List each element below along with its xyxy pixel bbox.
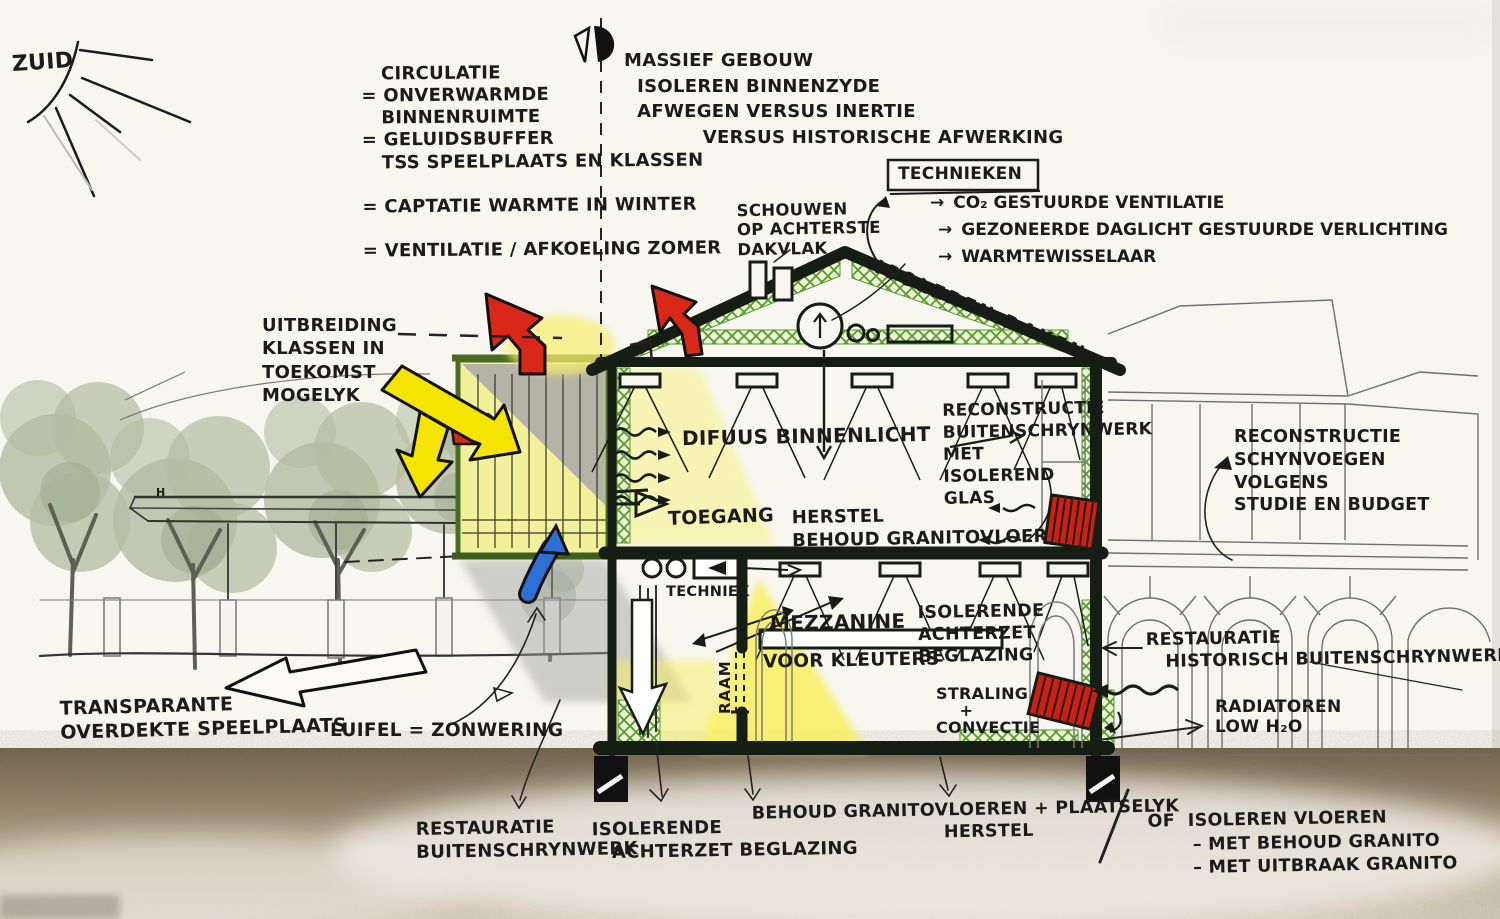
label-luifel-zonwering: LUIFEL = ZONWERING <box>330 720 563 743</box>
label-behoud-granitovloeren: BEHOUD GRANITOVLOEREN + PLAATSELYK HERST… <box>752 796 1180 847</box>
sketch-canvas: ZUID CIRCULATIE = ONVERWARMDE BINNENRUIM… <box>0 0 1500 919</box>
label-mezzanine: MEZZANINE <box>770 609 906 636</box>
label-reconstructie-buitenschrijnwerk: RECONSTRUCTIE BUITENSCHRYNWERK MET ISOLE… <box>942 396 1154 510</box>
label-radiatoren-low-h2o: RADIATOREN LOW H₂O <box>1215 697 1342 738</box>
label-toegang: TOEGANG <box>668 504 775 531</box>
label-techniek: TECHNIEK <box>666 584 750 602</box>
label-transparante-speelplaats: TRANSPARANTE OVERDEKTE SPEELPLAATS <box>59 690 347 745</box>
label-herstel-granitovloer: HERSTEL BEHOUD GRANITOVLOER <box>792 503 1048 552</box>
technieken-item-label: GEZONEERDE DAGLICHT GESTUURDE VERLICHTIN… <box>961 220 1448 240</box>
technieken-item-verlichting: → GEZONEERDE DAGLICHT GESTUURDE VERLICHT… <box>938 220 1448 240</box>
technieken-item-label: WARMTEWISSELAAR <box>961 247 1156 267</box>
note-massief-gebouw: MASSIEF GEBOUW ISOLEREN BINNENZYDE AFWEG… <box>624 48 1063 150</box>
arrow-icon: → <box>930 193 944 213</box>
label-restauratie-historisch: RESTAURATIE HISTORISCH BUITENSCHRYNWERK <box>1146 623 1500 674</box>
label-isolerende-achterzet: ISOLERENDE ACHTERZET BEGLAZING <box>917 601 1045 669</box>
label-of-isoleren-vloeren: OF ISOLEREN VLOEREN – MET BEHOUD GRANITO… <box>1147 805 1457 881</box>
label-schouwen: SCHOUWEN OP ACHTERSTE DAKVLAK <box>737 199 882 260</box>
technieken-item-ventilatie: → CO₂ GESTUURDE VENTILATIE <box>930 193 1224 213</box>
label-difuus-binnenlicht: DIFUUS BINNENLICHT <box>682 422 931 451</box>
label-voor-kleuters: VOOR KLEUTERS <box>763 648 940 674</box>
paper-shading <box>1160 0 1500 46</box>
technieken-item-warmtewisselaar: → WARMTEWISSELAAR <box>938 247 1156 267</box>
label-uitbreiding: UITBREIDING KLASSEN IN TOEKOMST MOGELYK <box>262 314 397 408</box>
label-straling-convectie: STRALING + CONVECTIE <box>936 686 1040 736</box>
technieken-title: TECHNIEKEN <box>898 164 1022 185</box>
label-h-marker: H <box>156 486 166 499</box>
arrow-icon: → <box>938 220 952 240</box>
label-raam: RAAM <box>716 660 734 714</box>
south-sun-label: ZUID <box>11 48 74 79</box>
technieken-item-label: CO₂ GESTUURDE VENTILATIE <box>953 193 1224 213</box>
label-reconstructie-schijnvoegen: RECONSTRUCTIE SCHYNVOEGEN VOLGENS STUDIE… <box>1234 426 1430 517</box>
arrow-icon: → <box>938 247 952 267</box>
